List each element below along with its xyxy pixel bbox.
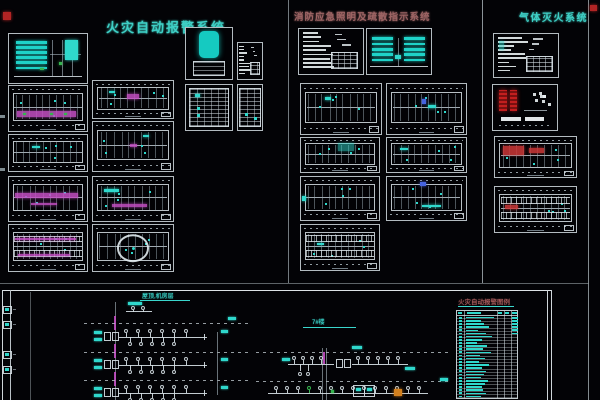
horizontal-divider [0, 283, 589, 284]
legend-table [456, 310, 518, 399]
riser-building-underline [303, 327, 356, 328]
drawing-panel-fa-plan-6 [92, 121, 174, 172]
drawing-panel-el-plan-6 [386, 176, 467, 221]
section-divider-middle-right [482, 0, 483, 283]
drawing-panel-gas-notes [493, 33, 559, 78]
drawing-panel-fa-plan-7 [92, 176, 174, 222]
section-title-gas-extinguishing: 气体灭火系统 [519, 9, 588, 24]
riser-roof-underline [140, 300, 190, 301]
drawing-panel-fa-plan-3 [8, 176, 88, 222]
riser-sheet-top-border [2, 290, 552, 291]
legend-title: 火灾自动报警图例 [449, 296, 519, 306]
riser-orange-device [394, 389, 402, 396]
drawing-panel-el-plan-7 [300, 224, 380, 271]
riser-roof-label: 屋顶,机房层 [142, 291, 174, 300]
section-divider-left-middle [288, 0, 289, 283]
riser-sheet-right-border-2 [551, 290, 552, 400]
cad-sheet: 火灾自动报警系统 消防应急照明及疏散指示系统 气体灭火系统 屋顶,机房层 7#楼… [0, 0, 600, 400]
drawing-panel-fa-small-2 [237, 84, 263, 131]
corner-mark-top-left [3, 12, 11, 20]
drawing-panel-fa-plan-circle [92, 224, 174, 272]
drawing-panel-el-plan-1 [300, 83, 382, 135]
drawing-panel-fa-plan-4 [8, 224, 88, 272]
corner-mark-top-right [590, 5, 597, 11]
riser-sheet-right-border [547, 290, 548, 400]
drawing-panel-gas-plan-2 [494, 186, 577, 233]
drawing-panel-fa-tank [185, 27, 233, 80]
section-title-emergency-lighting: 消防应急照明及疏散指示系统 [294, 9, 431, 23]
drawing-panel-gas-plan-1 [494, 136, 577, 178]
edge-tick-1 [0, 115, 5, 118]
riser-building-label: 7#楼 [312, 317, 325, 326]
drawing-panel-fa-small-1 [237, 42, 263, 80]
drawing-panel-fa-elevation [8, 33, 88, 84]
drawing-panel-fa-grid-1 [185, 84, 233, 131]
drawing-panel-el-plan-3 [300, 137, 380, 173]
edge-tick-2 [0, 168, 5, 171]
drawing-panel-el-plan-5 [300, 176, 380, 221]
riser-sheet-inner-vline [30, 292, 31, 400]
drawing-panel-fa-plan-2 [8, 134, 88, 172]
drawing-panel-el-plan-4 [386, 137, 467, 173]
drawing-panel-fa-plan-5 [92, 80, 174, 119]
drawing-panel-fa-plan-1 [8, 85, 88, 132]
drawing-panel-el-plan-2 [386, 83, 467, 135]
outer-frame-right [588, 0, 589, 400]
drawing-panel-gas-detail [492, 84, 558, 131]
drawing-panel-el-elevation [366, 28, 432, 75]
legend-title-underline [458, 306, 514, 307]
drawing-panel-el-notes [298, 28, 364, 75]
